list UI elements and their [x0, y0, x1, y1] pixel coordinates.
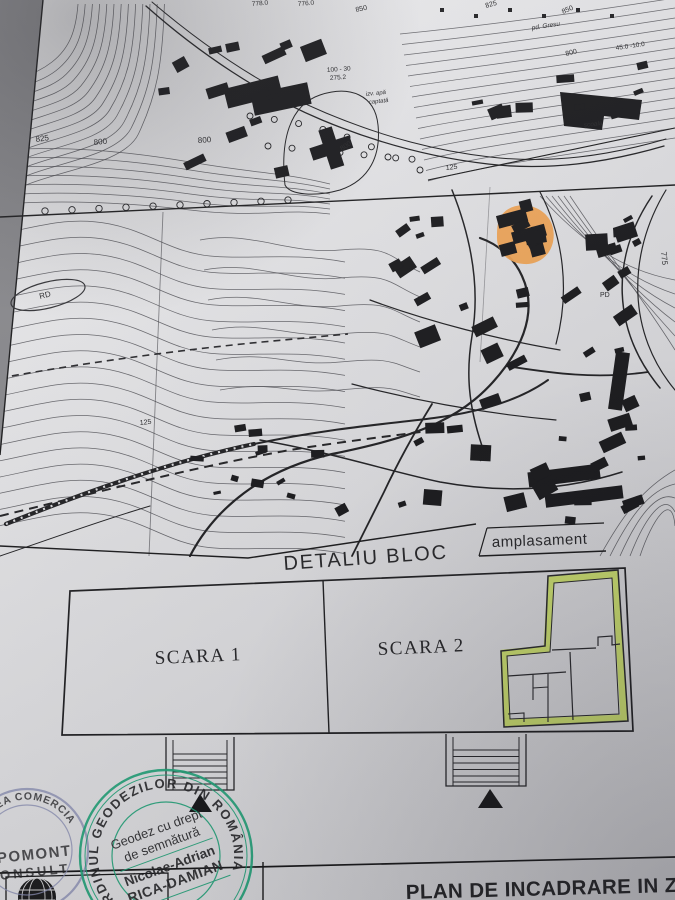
- map-label: 275.2: [330, 74, 347, 82]
- map-symbol: [542, 14, 546, 18]
- map-label: 825: [35, 133, 50, 144]
- map-label: 125: [139, 419, 151, 427]
- map-symbol: [610, 14, 614, 18]
- building: [248, 429, 262, 438]
- building: [638, 455, 646, 460]
- building: [425, 422, 444, 433]
- callout-label: amplasament: [492, 531, 588, 551]
- map-label: PD: [600, 292, 610, 299]
- building: [585, 233, 608, 250]
- map-symbol: [440, 8, 444, 12]
- building: [158, 87, 170, 96]
- photo-of-site-plan-document: 825800800778.0776.0850825850pd. Gresu800…: [0, 0, 675, 900]
- map-label: 775: [659, 251, 669, 266]
- building: [559, 436, 567, 441]
- building: [190, 456, 204, 462]
- building: [423, 489, 443, 506]
- map-label: 800: [93, 137, 108, 147]
- building: [574, 104, 584, 110]
- building: [531, 226, 539, 229]
- building: [556, 74, 574, 83]
- building: [516, 302, 529, 308]
- plan-drawing: 825800800778.0776.0850825850pd. Gresu800…: [0, 0, 675, 900]
- building: [574, 497, 592, 505]
- building: [495, 105, 511, 119]
- paper-sheet: [0, 0, 675, 900]
- map-label: 125: [445, 164, 457, 172]
- building: [470, 444, 491, 461]
- building: [515, 102, 533, 112]
- building: [565, 516, 576, 525]
- building: [431, 216, 444, 227]
- entrance1-label: SCARA 1: [154, 644, 242, 669]
- building: [613, 227, 632, 237]
- map-symbol: [474, 14, 478, 18]
- entrance2-label: SCARA 2: [377, 635, 465, 660]
- map-symbol: [508, 8, 512, 12]
- building: [619, 103, 627, 109]
- map-symbol: [576, 8, 580, 12]
- building: [311, 450, 324, 458]
- map-label: 800: [198, 135, 212, 145]
